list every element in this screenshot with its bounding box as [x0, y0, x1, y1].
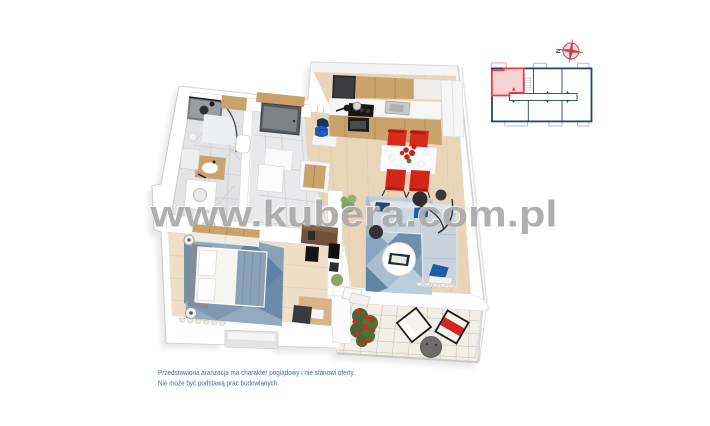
svg-text:www.kubera.com.pl: www.kubera.com.pl — [149, 194, 557, 235]
svg-text:Nie może być podstawą prac bud: Nie może być podstawą prac budowlanych. — [158, 379, 279, 388]
svg-text:N: N — [556, 48, 563, 53]
svg-text:Przedstawiona aranżacja ma cha: Przedstawiona aranżacja ma charakter pog… — [158, 368, 355, 377]
